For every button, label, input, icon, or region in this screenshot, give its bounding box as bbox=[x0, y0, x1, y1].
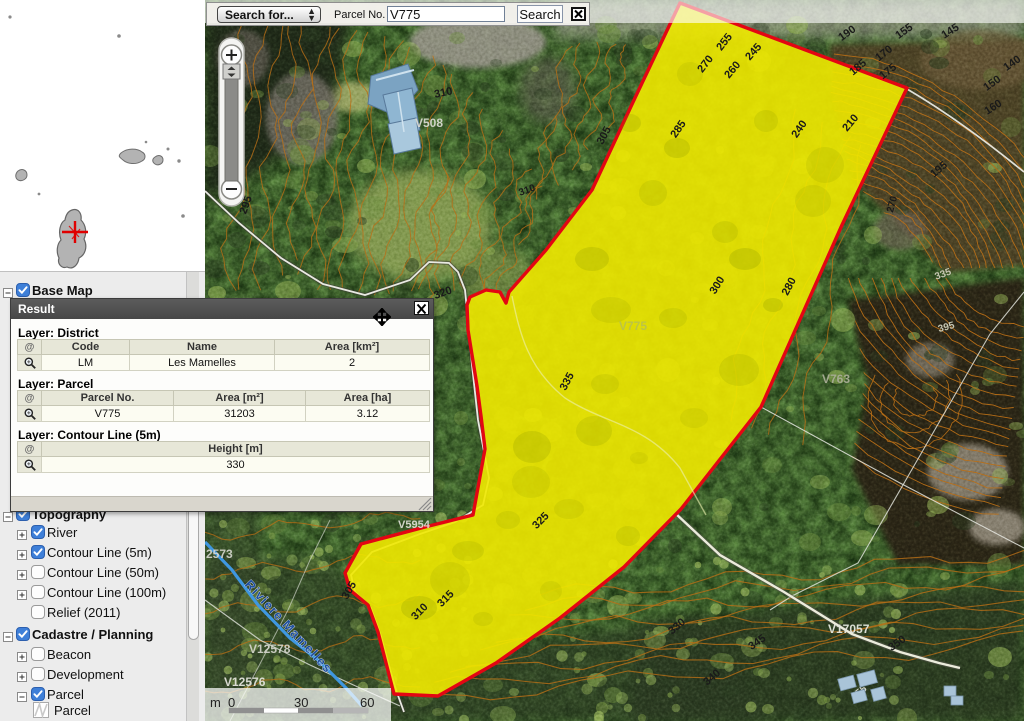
svg-text:V12578: V12578 bbox=[249, 642, 291, 656]
svg-text:V5954: V5954 bbox=[398, 519, 431, 531]
svg-text:V12576: V12576 bbox=[224, 675, 266, 689]
svg-text:2573: 2573 bbox=[206, 547, 233, 561]
svg-text:V17057: V17057 bbox=[828, 622, 870, 636]
svg-text:m: m bbox=[210, 695, 221, 710]
svg-text:V775: V775 bbox=[619, 319, 647, 333]
svg-text:V763: V763 bbox=[822, 372, 850, 386]
svg-text:V508: V508 bbox=[415, 116, 443, 130]
